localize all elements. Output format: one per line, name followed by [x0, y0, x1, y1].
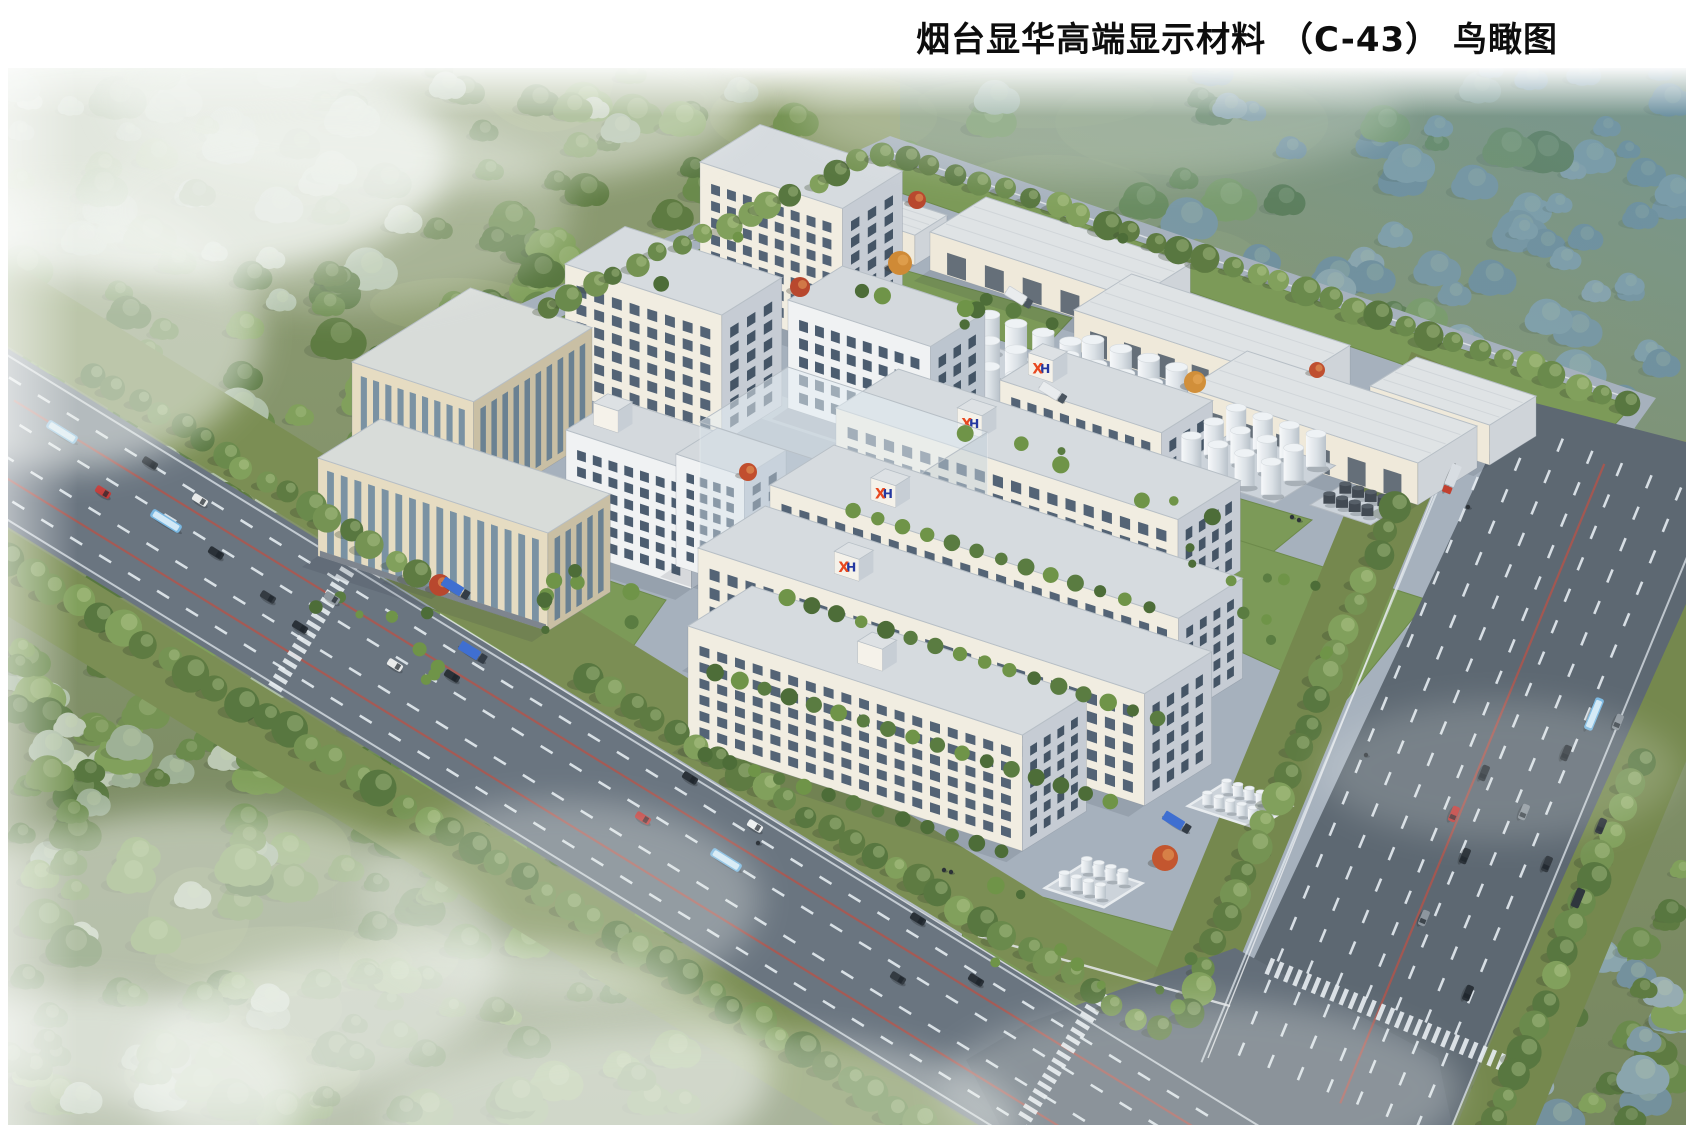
svg-text:X: X — [838, 560, 849, 576]
title-bar: 烟台显华高端显示材料 （C-43） 鸟瞰图 — [0, 0, 1686, 68]
svg-text:X: X — [875, 486, 886, 502]
drawing-title: 烟台显华高端显示材料 （C-43） 鸟瞰图 — [916, 12, 1558, 61]
xh-logo: HX — [1032, 361, 1050, 377]
xh-logo: HX — [838, 560, 856, 576]
svg-text:X: X — [1032, 361, 1043, 377]
xh-logo: HX — [875, 486, 893, 502]
aerial-rendering: HXHXHXHXHX — [8, 68, 1686, 1125]
rendering-page: 烟台显华高端显示材料 （C-43） 鸟瞰图 HXHX — [0, 0, 1686, 1125]
